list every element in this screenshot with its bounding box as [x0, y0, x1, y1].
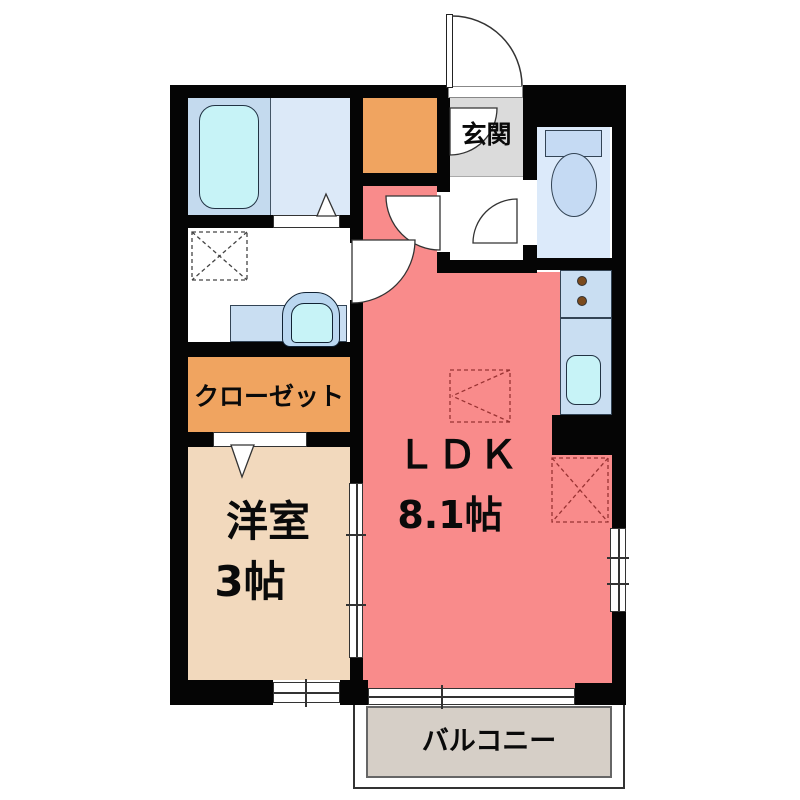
wall-bath-right-upper: [350, 85, 363, 243]
ldk-window: [610, 528, 626, 612]
wall-western-right-bottom: [350, 658, 363, 690]
sliding-door: [349, 483, 363, 658]
ldk-size-label: 8.1帖: [370, 496, 530, 536]
bathroom-door-strip: [273, 215, 340, 228]
wall-toilet-left-lower: [523, 245, 537, 260]
entrance-label: 玄関: [450, 122, 523, 148]
western-room-window: [273, 682, 340, 703]
wall-left: [170, 85, 188, 705]
entrance-door-leaf: [446, 14, 453, 88]
wall-counter-end: [552, 415, 612, 455]
western-room-size-label: 3帖: [170, 560, 330, 604]
entrance-door-swing: [452, 16, 522, 86]
hall-corridor-opening: [437, 192, 450, 252]
wall-top-left: [170, 85, 448, 98]
wall-storage-entrance-divider: [437, 85, 450, 192]
wall-toilet-left-upper: [523, 127, 537, 180]
kitchen-sink: [566, 355, 601, 405]
balcony-label: バルコニー: [366, 728, 612, 756]
wall-toilet-bottom: [537, 258, 612, 270]
vanity-sink-bowl: [291, 303, 333, 343]
wall-hall-bottom: [443, 260, 537, 273]
storage-room: [363, 97, 437, 173]
entrance-threshold: [448, 86, 523, 98]
stove-burner-2: [577, 296, 587, 306]
floor-plan: 玄関 クローゼット ＬＤＫ 8.1帖 洋室 3帖 バルコニー: [0, 0, 800, 800]
wall-storage-bottom: [350, 173, 450, 186]
wall-closet-bottom-left: [188, 432, 213, 447]
wall-bath-right-lower: [350, 300, 363, 483]
hall-floor: [450, 177, 523, 260]
wall-closet-bottom-right: [307, 432, 363, 447]
toilet-bowl: [551, 153, 597, 217]
wall-right: [612, 85, 626, 705]
balcony-sliding-door: [368, 688, 575, 705]
closet-label: クローゼット: [188, 384, 350, 410]
wall-bottom-right: [575, 683, 626, 705]
bathroom-wash-area: [270, 97, 350, 215]
wall-bottom-west: [170, 680, 273, 705]
wall-top-right: [523, 85, 626, 127]
western-room-label: 洋室: [188, 500, 348, 544]
ldk-corridor-floor: [363, 186, 437, 272]
closet-door-strip: [213, 432, 307, 447]
bathtub: [199, 105, 259, 209]
ldk-label: ＬＤＫ: [363, 436, 553, 477]
stove-burner-1: [577, 276, 587, 286]
